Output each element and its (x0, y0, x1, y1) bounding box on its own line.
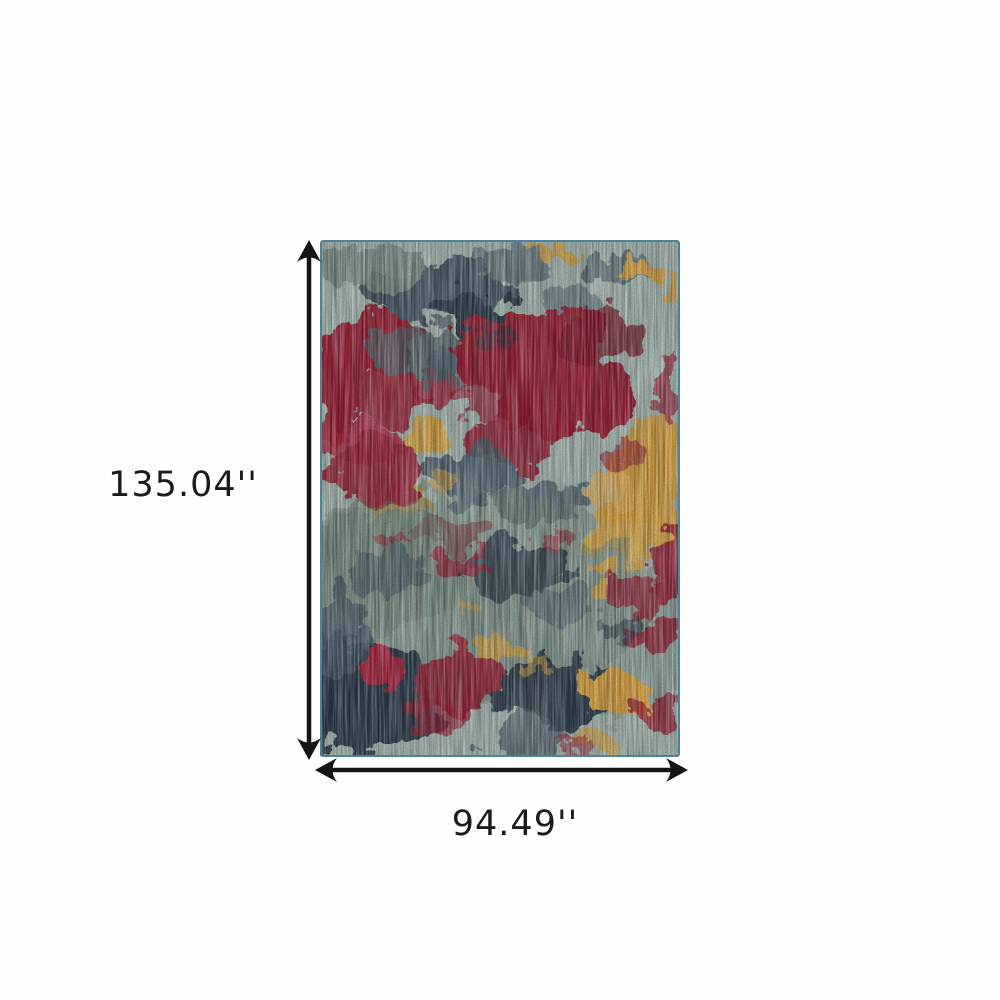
rug-image (320, 240, 680, 757)
rug-pattern (320, 240, 680, 757)
rug-artwork (320, 240, 680, 757)
width-dimension-label: 94.49'' (395, 804, 635, 844)
product-dimension-figure: 135.04'' 94.49'' (0, 0, 1000, 1000)
height-dimension-label: 135.04'' (63, 465, 303, 505)
rug-grain-texture (320, 240, 680, 757)
width-dimension-arrow (313, 754, 690, 786)
